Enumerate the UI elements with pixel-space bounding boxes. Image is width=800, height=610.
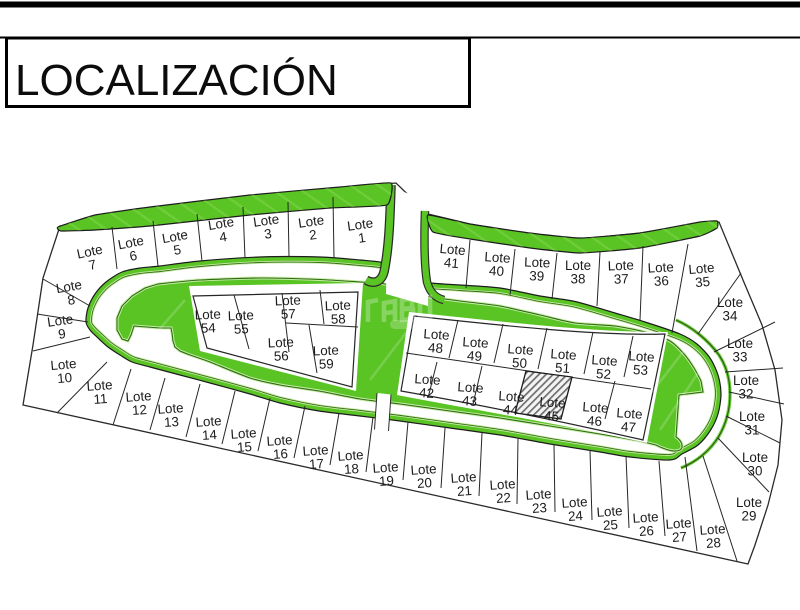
svg-text:LOCALIZACIÓN: LOCALIZACIÓN bbox=[15, 56, 338, 105]
